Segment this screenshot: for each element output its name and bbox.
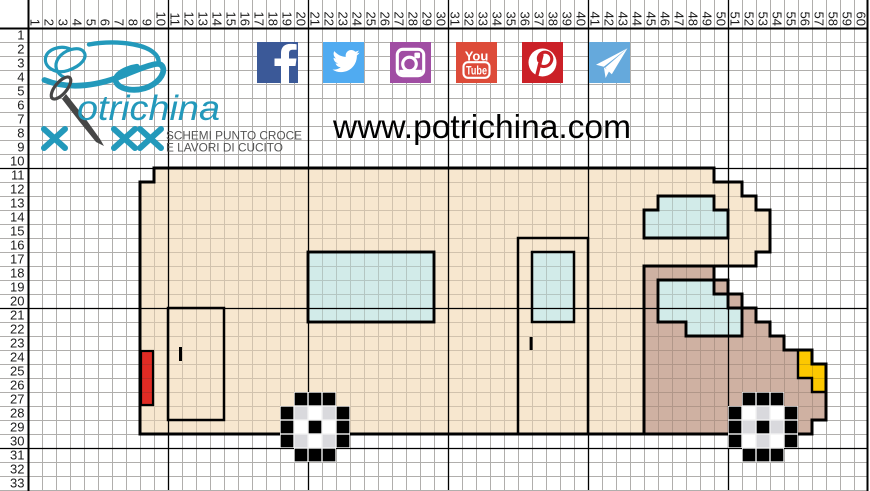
- svg-text:28: 28: [10, 406, 24, 421]
- svg-text:33: 33: [475, 12, 490, 26]
- svg-text:57: 57: [811, 12, 826, 26]
- svg-text:20: 20: [293, 12, 308, 26]
- svg-text:3: 3: [17, 56, 24, 71]
- svg-text:21: 21: [307, 12, 322, 26]
- svg-text:5: 5: [17, 84, 24, 99]
- svg-text:50: 50: [713, 12, 728, 26]
- svg-text:34: 34: [489, 12, 504, 26]
- svg-text:31: 31: [447, 12, 462, 26]
- svg-text:14: 14: [10, 210, 24, 225]
- svg-text:15: 15: [223, 12, 238, 26]
- svg-text:16: 16: [237, 12, 252, 26]
- svg-text:11: 11: [11, 168, 25, 183]
- svg-text:8: 8: [17, 126, 24, 141]
- svg-text:43: 43: [615, 12, 630, 26]
- svg-text:9: 9: [139, 19, 154, 26]
- svg-text:2: 2: [17, 42, 24, 57]
- svg-text:30: 30: [433, 12, 448, 26]
- svg-text:45: 45: [643, 12, 658, 26]
- svg-text:21: 21: [10, 308, 24, 323]
- svg-text:8: 8: [125, 19, 140, 26]
- svg-text:23: 23: [10, 336, 24, 351]
- svg-text:30: 30: [10, 434, 24, 449]
- svg-text:20: 20: [10, 294, 24, 309]
- svg-text:10: 10: [10, 154, 24, 169]
- svg-text:13: 13: [195, 12, 210, 26]
- svg-text:12: 12: [10, 182, 24, 197]
- svg-text:1: 1: [17, 28, 24, 43]
- svg-text:23: 23: [335, 12, 350, 26]
- svg-text:26: 26: [10, 378, 24, 393]
- svg-text:19: 19: [10, 280, 24, 295]
- svg-text:39: 39: [559, 12, 574, 26]
- svg-text:36: 36: [517, 12, 532, 26]
- svg-text:4: 4: [17, 70, 24, 85]
- svg-text:2: 2: [41, 19, 56, 26]
- svg-text:48: 48: [685, 12, 700, 26]
- svg-text:28: 28: [405, 12, 420, 26]
- svg-text:25: 25: [363, 12, 378, 26]
- svg-text:38: 38: [545, 12, 560, 26]
- svg-text:54: 54: [769, 12, 784, 26]
- svg-text:47: 47: [671, 12, 686, 26]
- svg-text:27: 27: [391, 12, 406, 26]
- svg-text:10: 10: [153, 12, 168, 26]
- svg-text:Tube: Tube: [466, 66, 487, 78]
- svg-text:27: 27: [10, 392, 24, 407]
- svg-text:11: 11: [167, 13, 182, 27]
- svg-text:24: 24: [10, 350, 24, 365]
- svg-text:26: 26: [377, 12, 392, 26]
- svg-text:14: 14: [209, 12, 224, 26]
- svg-text:16: 16: [10, 238, 24, 253]
- svg-text:otrichina: otrichina: [77, 89, 220, 128]
- svg-text:32: 32: [461, 12, 476, 26]
- svg-text:29: 29: [419, 12, 434, 26]
- svg-text:31: 31: [10, 448, 24, 463]
- svg-text:35: 35: [503, 12, 518, 26]
- svg-text:4: 4: [69, 19, 84, 26]
- svg-text:24: 24: [349, 12, 364, 26]
- svg-text:7: 7: [17, 112, 24, 127]
- svg-text:7: 7: [111, 19, 126, 26]
- svg-text:17: 17: [251, 12, 266, 26]
- svg-text:32: 32: [10, 462, 24, 477]
- svg-text:59: 59: [839, 12, 854, 26]
- svg-text:55: 55: [783, 12, 798, 26]
- svg-text:6: 6: [17, 98, 24, 113]
- svg-text:www.potrichina.com: www.potrichina.com: [332, 108, 631, 145]
- svg-text:33: 33: [10, 476, 24, 491]
- svg-text:18: 18: [10, 266, 24, 281]
- svg-text:46: 46: [657, 12, 672, 26]
- svg-text:12: 12: [181, 12, 196, 26]
- svg-text:19: 19: [279, 12, 294, 26]
- svg-text:5: 5: [83, 19, 98, 26]
- svg-text:22: 22: [10, 322, 24, 337]
- svg-text:9: 9: [17, 140, 24, 155]
- svg-text:41: 41: [587, 12, 602, 26]
- svg-text:60: 60: [853, 12, 868, 26]
- svg-text:22: 22: [321, 12, 336, 26]
- svg-text:25: 25: [10, 364, 24, 379]
- svg-text:18: 18: [265, 12, 280, 26]
- svg-text:3: 3: [55, 19, 70, 26]
- svg-text:44: 44: [629, 12, 644, 26]
- svg-text:49: 49: [699, 12, 714, 26]
- svg-text:15: 15: [10, 224, 24, 239]
- svg-text:37: 37: [531, 12, 546, 26]
- svg-text:40: 40: [573, 12, 588, 26]
- svg-text:51: 51: [727, 12, 742, 26]
- svg-text:52: 52: [741, 12, 756, 26]
- svg-text:17: 17: [10, 252, 24, 267]
- svg-text:58: 58: [825, 12, 840, 26]
- svg-text:13: 13: [10, 196, 24, 211]
- svg-text:6: 6: [97, 19, 112, 26]
- svg-text:56: 56: [797, 12, 812, 26]
- svg-text:1: 1: [27, 19, 42, 26]
- svg-text:42: 42: [601, 12, 616, 26]
- svg-text:E LAVORI DI CUCITO: E LAVORI DI CUCITO: [166, 141, 283, 155]
- svg-text:53: 53: [755, 12, 770, 26]
- svg-text:29: 29: [10, 420, 24, 435]
